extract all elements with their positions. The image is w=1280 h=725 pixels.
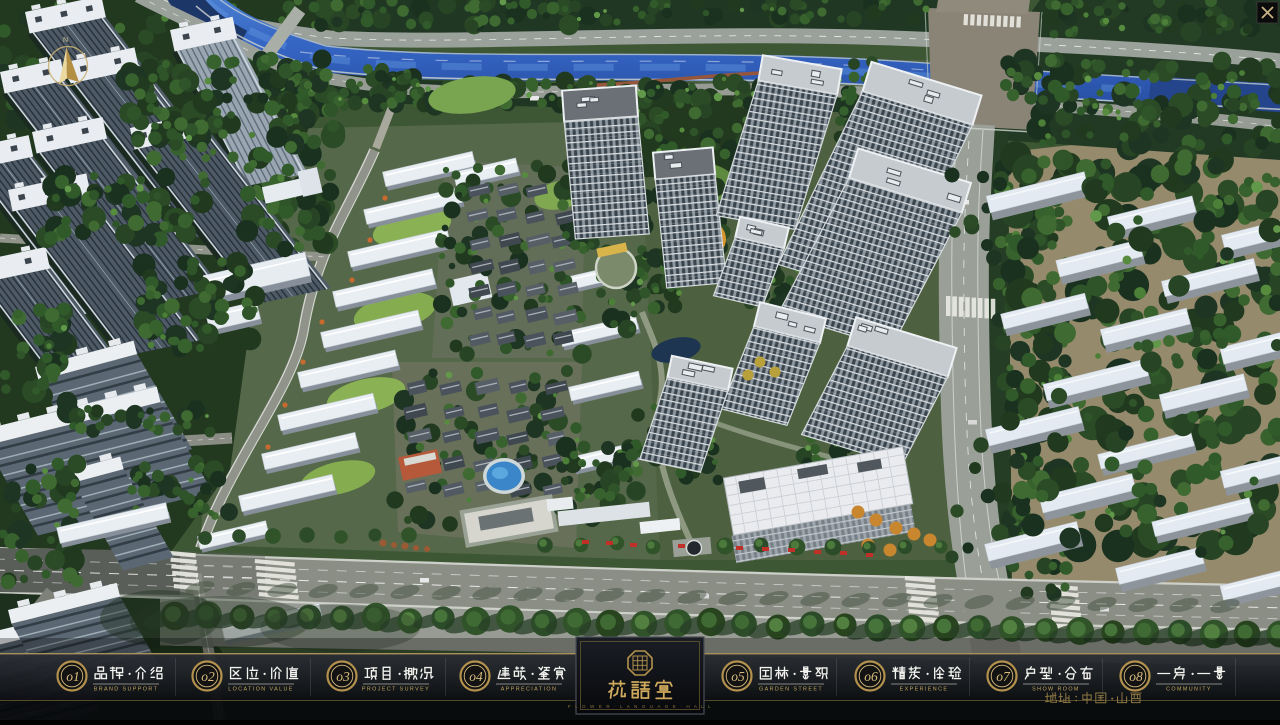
svg-text:N: N (63, 37, 68, 44)
svg-text:BRAND SUPPORT: BRAND SUPPORT (94, 687, 159, 693)
svg-text:LOCATION VALUE: LOCATION VALUE (228, 687, 294, 693)
svg-text:o2: o2 (201, 669, 215, 684)
svg-text:o5: o5 (731, 669, 745, 684)
svg-text:SHOW ROOM: SHOW ROOM (1032, 687, 1080, 693)
svg-text:o1: o1 (66, 669, 80, 684)
svg-text:o3: o3 (336, 669, 350, 684)
svg-text:o7: o7 (996, 669, 1011, 684)
svg-text:o6: o6 (864, 669, 878, 684)
svg-text:APPRECIATION: APPRECIATION (501, 687, 558, 693)
svg-text:COMMUNITY: COMMUNITY (1166, 687, 1212, 693)
svg-text:F L O W E R · L A N G U A G E: F L O W E R · L A N G U A G E · H A L L (568, 704, 712, 709)
svg-text:GARDEN STREET: GARDEN STREET (759, 687, 823, 693)
svg-text:PROJECT SURVEY: PROJECT SURVEY (362, 687, 430, 693)
svg-text:EXPERIENCE: EXPERIENCE (900, 687, 949, 693)
svg-text:o8: o8 (1129, 669, 1143, 684)
svg-text:o4: o4 (469, 669, 483, 684)
